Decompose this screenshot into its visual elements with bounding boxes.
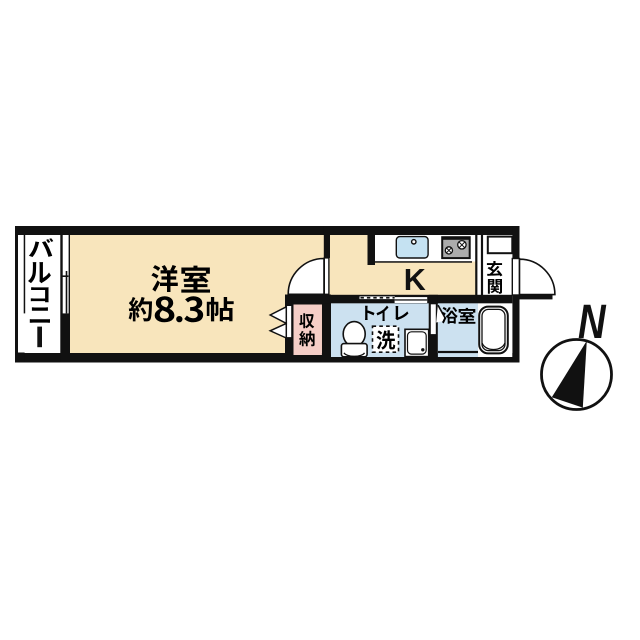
svg-text:K: K — [404, 263, 426, 297]
svg-text:N: N — [578, 296, 607, 349]
